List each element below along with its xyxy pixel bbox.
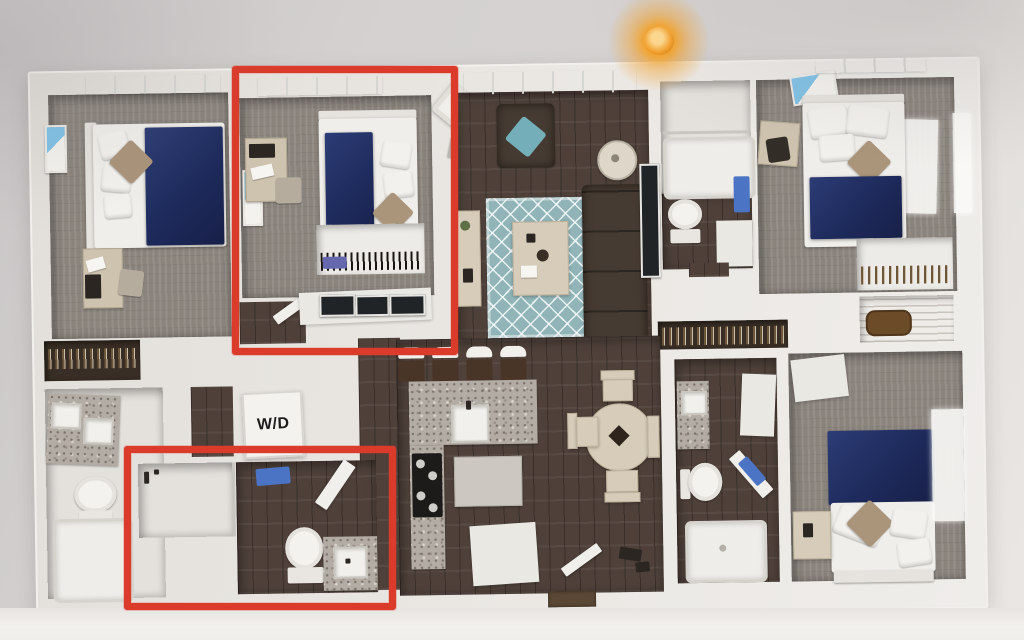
bedroom4-pillow [896,537,934,568]
bedroom3-window-light [902,119,938,214]
hallway-wall-art [639,164,661,278]
bedroom1-wall-art [45,125,68,173]
floor-plan-photo: W/D [0,0,1024,640]
bar-stool-back [466,346,492,357]
kitchen-cabinet [469,522,539,586]
bathroom4-sink [681,391,707,415]
bedroom3-top-window [816,57,926,73]
bar-stool [500,346,527,380]
cooktop [412,453,443,517]
entry-items [635,561,650,572]
bathroom2-sink [83,418,114,445]
right-wall-window [952,113,972,213]
bedroom4-bed-blanket [827,429,934,505]
bedroom1-monitor [85,274,101,298]
front-door-threshold [548,591,596,608]
bathroom2-tub [53,518,134,603]
dining-chair [647,416,660,458]
burner [416,459,425,468]
kitchen-faucet [466,401,471,410]
bedroom3-bed-blanket [809,176,902,239]
bathroom4-tub-shelf [740,373,776,436]
dining-chair [576,417,598,447]
bar-stool [466,346,493,380]
coat-closet-clothes [662,326,784,346]
ceiling-light-icon [644,27,674,55]
bathroom1-vanity [716,220,753,267]
bathroom1-toilet-tank [670,229,700,243]
coffee-table-tray [521,266,537,278]
bedroom1-closet-clothes [48,348,136,369]
highlight-box-bedroom [232,66,458,355]
bedroom3-desk-chair [765,136,790,163]
bedroom4-pillow [889,507,929,540]
coffee-table-decor [526,234,535,243]
closet-duffel-bag [866,310,912,337]
bedroom1-pillow [103,193,133,219]
bar-stool-seat [432,360,458,381]
bedroom4-bed-headboard [834,569,934,583]
highlight-box-bathroom [124,446,396,610]
shower-drain [719,545,726,552]
burner [428,471,437,480]
bathroom1-doorway [689,263,729,278]
burner [416,491,425,500]
bar-stool-back [500,346,526,357]
bedroom1-desk-chair [118,269,145,298]
photo-bottom-band [0,608,1024,640]
console-decor [463,269,473,283]
dining-chair [603,379,633,401]
console-plant [460,221,470,231]
dining-chair-back [604,492,640,503]
bathroom2-sink [51,402,82,429]
bar-stool-seat [466,359,492,380]
kitchen-island [454,456,523,507]
bathroom4-shower-pan [685,520,768,583]
closet-upper-clothes [861,265,949,284]
bedroom4-window [931,409,965,521]
floor-lamp-pole [611,154,619,162]
bar-stool-seat [398,360,424,381]
burner [429,503,438,512]
bathroom1-blue-mat [733,176,750,212]
dining-chair [606,470,638,492]
bedroom4-lamp [803,523,813,537]
bedroom1-bed-blanket [145,126,225,245]
washer-dryer-label: W/D [257,415,290,435]
bedroom1-window [86,74,220,94]
bedroom4-desk [790,354,849,402]
kitchen-sink [451,404,490,443]
bar-stool-seat [500,359,526,380]
